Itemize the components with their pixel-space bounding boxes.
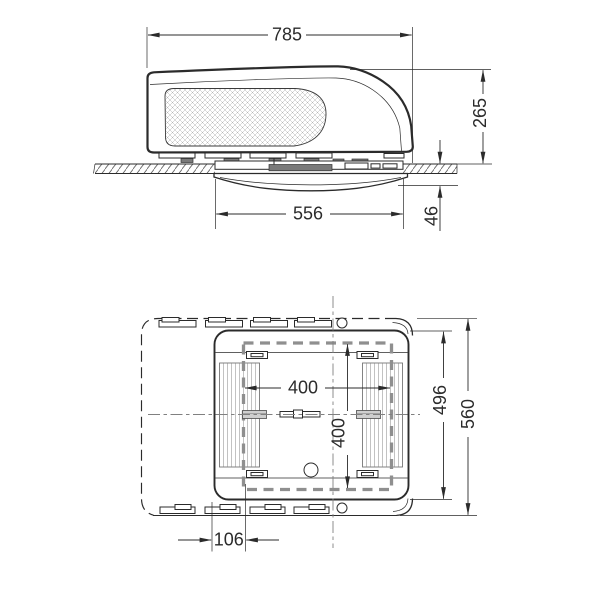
air-duct-connector	[269, 165, 332, 171]
dim-total-length: 785	[148, 25, 412, 45]
dim-shroud-width: 496	[430, 332, 450, 499]
footprint-corner-bottom-right-inner	[393, 499, 408, 512]
dim-edge-offset: 106	[178, 530, 279, 550]
side-elevation-view: 785	[94, 25, 493, 232]
cable-entry-hole-bottom	[337, 503, 347, 513]
dim-label-556: 556	[293, 204, 323, 224]
drawing-canvas: 785	[0, 0, 600, 600]
roof-hatch-right	[403, 164, 457, 173]
dim-label-106: 106	[214, 530, 244, 550]
dim-label-400-vertical: 400	[329, 418, 349, 448]
fixing-tabs-bottom	[160, 503, 347, 514]
technical-drawing: 785	[0, 0, 600, 600]
dim-label-785: 785	[272, 25, 302, 45]
roof-hatch-left	[95, 164, 215, 173]
dim-label-560: 560	[458, 399, 478, 429]
ceiling-air-distributor	[214, 174, 408, 191]
dim-unit-width: 560	[458, 319, 478, 515]
bottom-plan-view: 400 400 496 560 106	[142, 296, 479, 552]
drain-hole	[304, 463, 318, 477]
dim-label-400-horizontal: 400	[288, 378, 318, 398]
dim-height-above-roof: 265	[470, 70, 490, 163]
dim-interior-unit-length: 556	[216, 204, 402, 224]
intake-grille-hatch	[165, 89, 326, 147]
dim-label-496: 496	[430, 385, 450, 415]
dim-label-265: 265	[470, 98, 490, 128]
dim-label-46: 46	[422, 206, 442, 226]
cable-entry-hole-top	[337, 318, 347, 328]
